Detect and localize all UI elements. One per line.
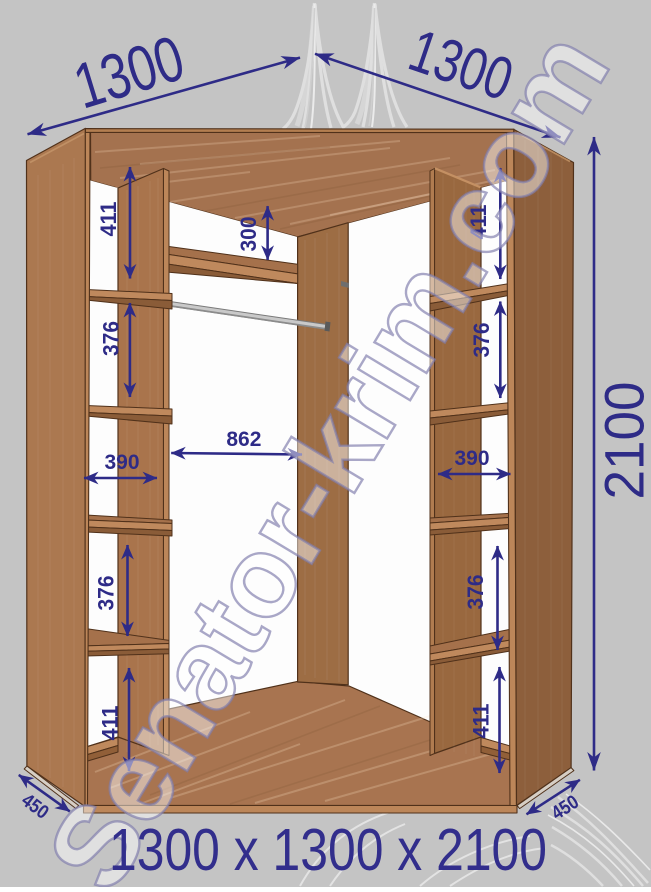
svg-text:376: 376 [99, 321, 124, 356]
svg-text:376: 376 [94, 576, 119, 611]
svg-text:411: 411 [469, 704, 494, 739]
svg-text:2100: 2100 [594, 382, 651, 500]
svg-text:411: 411 [96, 202, 121, 237]
svg-text:862: 862 [226, 428, 261, 451]
svg-text:390: 390 [104, 451, 139, 474]
svg-text:390: 390 [454, 447, 489, 470]
svg-text:376: 376 [463, 575, 488, 610]
svg-text:300: 300 [236, 217, 261, 252]
svg-text:1300 x 1300 x 2100: 1300 x 1300 x 2100 [109, 816, 547, 883]
